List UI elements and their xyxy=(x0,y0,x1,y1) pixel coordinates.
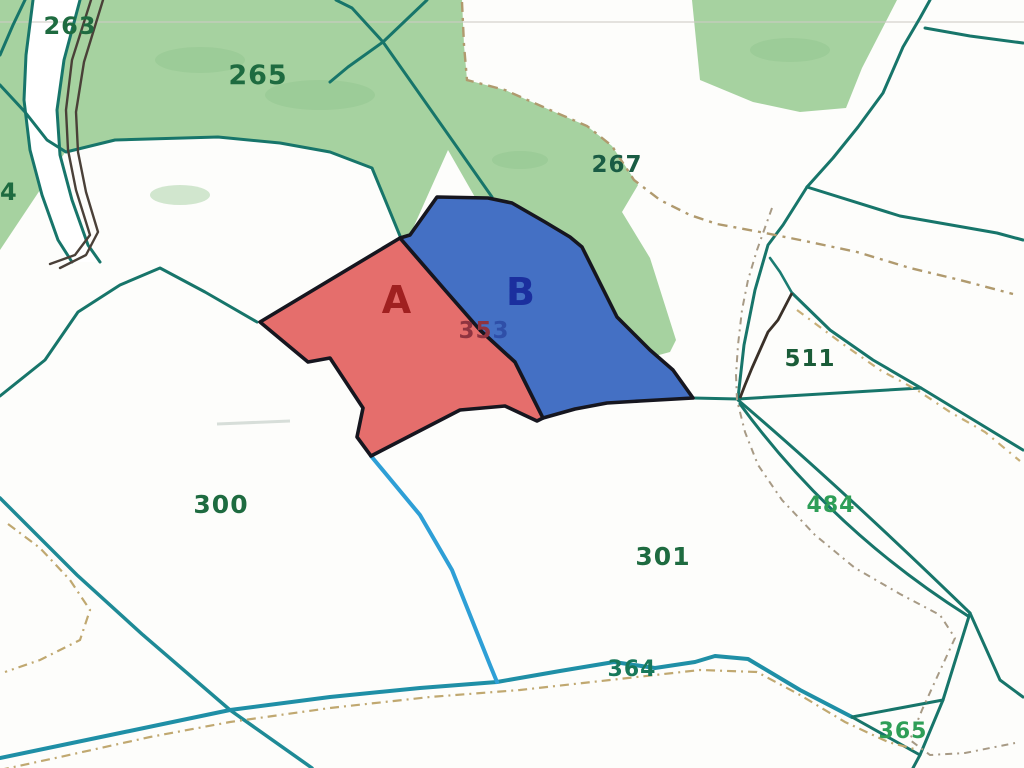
cadastral-map: 263 4 265 267 300 301 364 365 484 511 A … xyxy=(0,0,1024,768)
parcel-label-300: 300 xyxy=(193,490,248,519)
parcel-label-301: 301 xyxy=(635,542,690,571)
parcel-label-4: 4 xyxy=(0,178,18,206)
parcel-label-265: 265 xyxy=(228,60,287,91)
parcel-label-484: 484 xyxy=(807,493,856,518)
parcel-number-353-red-part: 35 xyxy=(458,318,492,344)
parcel-number-353-blue-part: 3 xyxy=(493,318,510,344)
parcel-a-letter: A xyxy=(382,278,412,322)
parcel-label-267: 267 xyxy=(591,152,642,178)
parcel-label-263: 263 xyxy=(43,12,96,40)
parcel-number-353: 353 xyxy=(458,318,509,344)
parcel-label-364: 364 xyxy=(608,657,657,682)
parcel-b-letter: B xyxy=(506,270,536,314)
parcel-label-365: 365 xyxy=(879,719,928,744)
parcel-label-511: 511 xyxy=(784,346,835,372)
